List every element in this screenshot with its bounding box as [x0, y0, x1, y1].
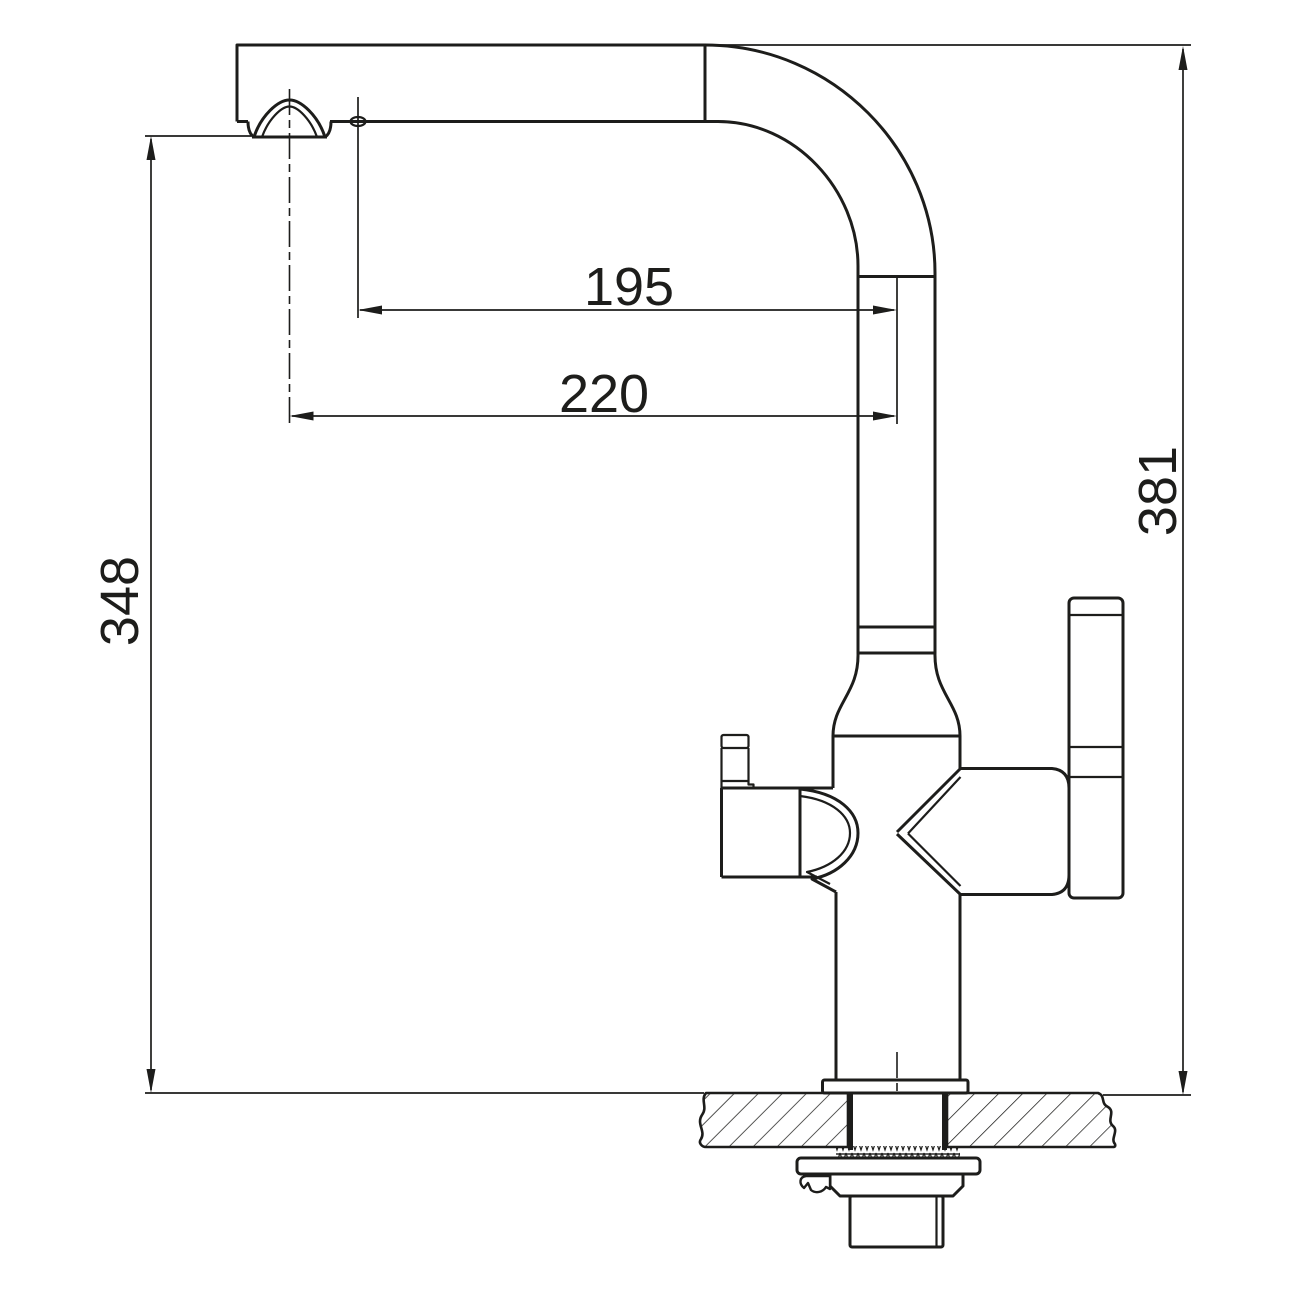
right-valve-cone-upper-inner [908, 777, 961, 834]
faucet-technical-drawing: 195 220 348 381 [0, 0, 1300, 1300]
base-flange [823, 1080, 969, 1093]
right-handle [1069, 598, 1123, 898]
threaded-shank-band [836, 1146, 960, 1158]
left-valve-stem [722, 748, 754, 788]
right-valve-cone-lower [897, 834, 961, 895]
right-valve [897, 769, 1069, 895]
spout-inner-contour [330, 122, 858, 789]
dimension-label-220: 220 [559, 364, 649, 424]
countertop-slab-right [947, 1093, 1115, 1147]
dimension-label-348: 348 [90, 556, 150, 646]
right-valve-cone-lower-inner [908, 834, 961, 887]
technical-drawing-page: 195 220 348 381 [0, 0, 1300, 1300]
left-valve-dome-inner [800, 796, 850, 884]
dim-195-arrow-left [358, 306, 382, 315]
right-valve-body-bottom [961, 875, 1070, 895]
left-valve-block [722, 788, 834, 877]
left-valve-stem-cap [722, 735, 749, 748]
dimension-220: 220 [290, 364, 898, 424]
clip-tab [800, 1176, 830, 1192]
dimension-label-195: 195 [584, 257, 674, 317]
body-column [836, 892, 960, 1080]
dim-220-arrow-left [290, 412, 314, 421]
right-valve-cone-upper [897, 769, 961, 833]
left-valve [722, 735, 859, 892]
right-valve-body-top [961, 769, 1070, 789]
dimension-label-381: 381 [1128, 446, 1188, 536]
riser-collar-lines [858, 627, 935, 653]
dimension-381: 381 [705, 45, 1191, 1095]
adapter-nut [830, 1174, 963, 1196]
countertop-slab-left [700, 1093, 848, 1147]
lock-nut [797, 1158, 980, 1174]
faucet-outline [237, 45, 1123, 1080]
countertop-section [700, 1093, 1115, 1150]
aerator-right-foot [325, 122, 331, 138]
aerator-left-foot [248, 122, 254, 138]
supply-stem [850, 1196, 943, 1247]
dim-381-arrow-down [1179, 1071, 1188, 1095]
dim-220-arrow-right [873, 412, 897, 421]
dim-348-arrow-up [147, 136, 156, 160]
dim-381-arrow-up [1179, 46, 1188, 70]
dim-348-arrow-down [147, 1069, 156, 1093]
dim-195-arrow-right [873, 306, 897, 315]
